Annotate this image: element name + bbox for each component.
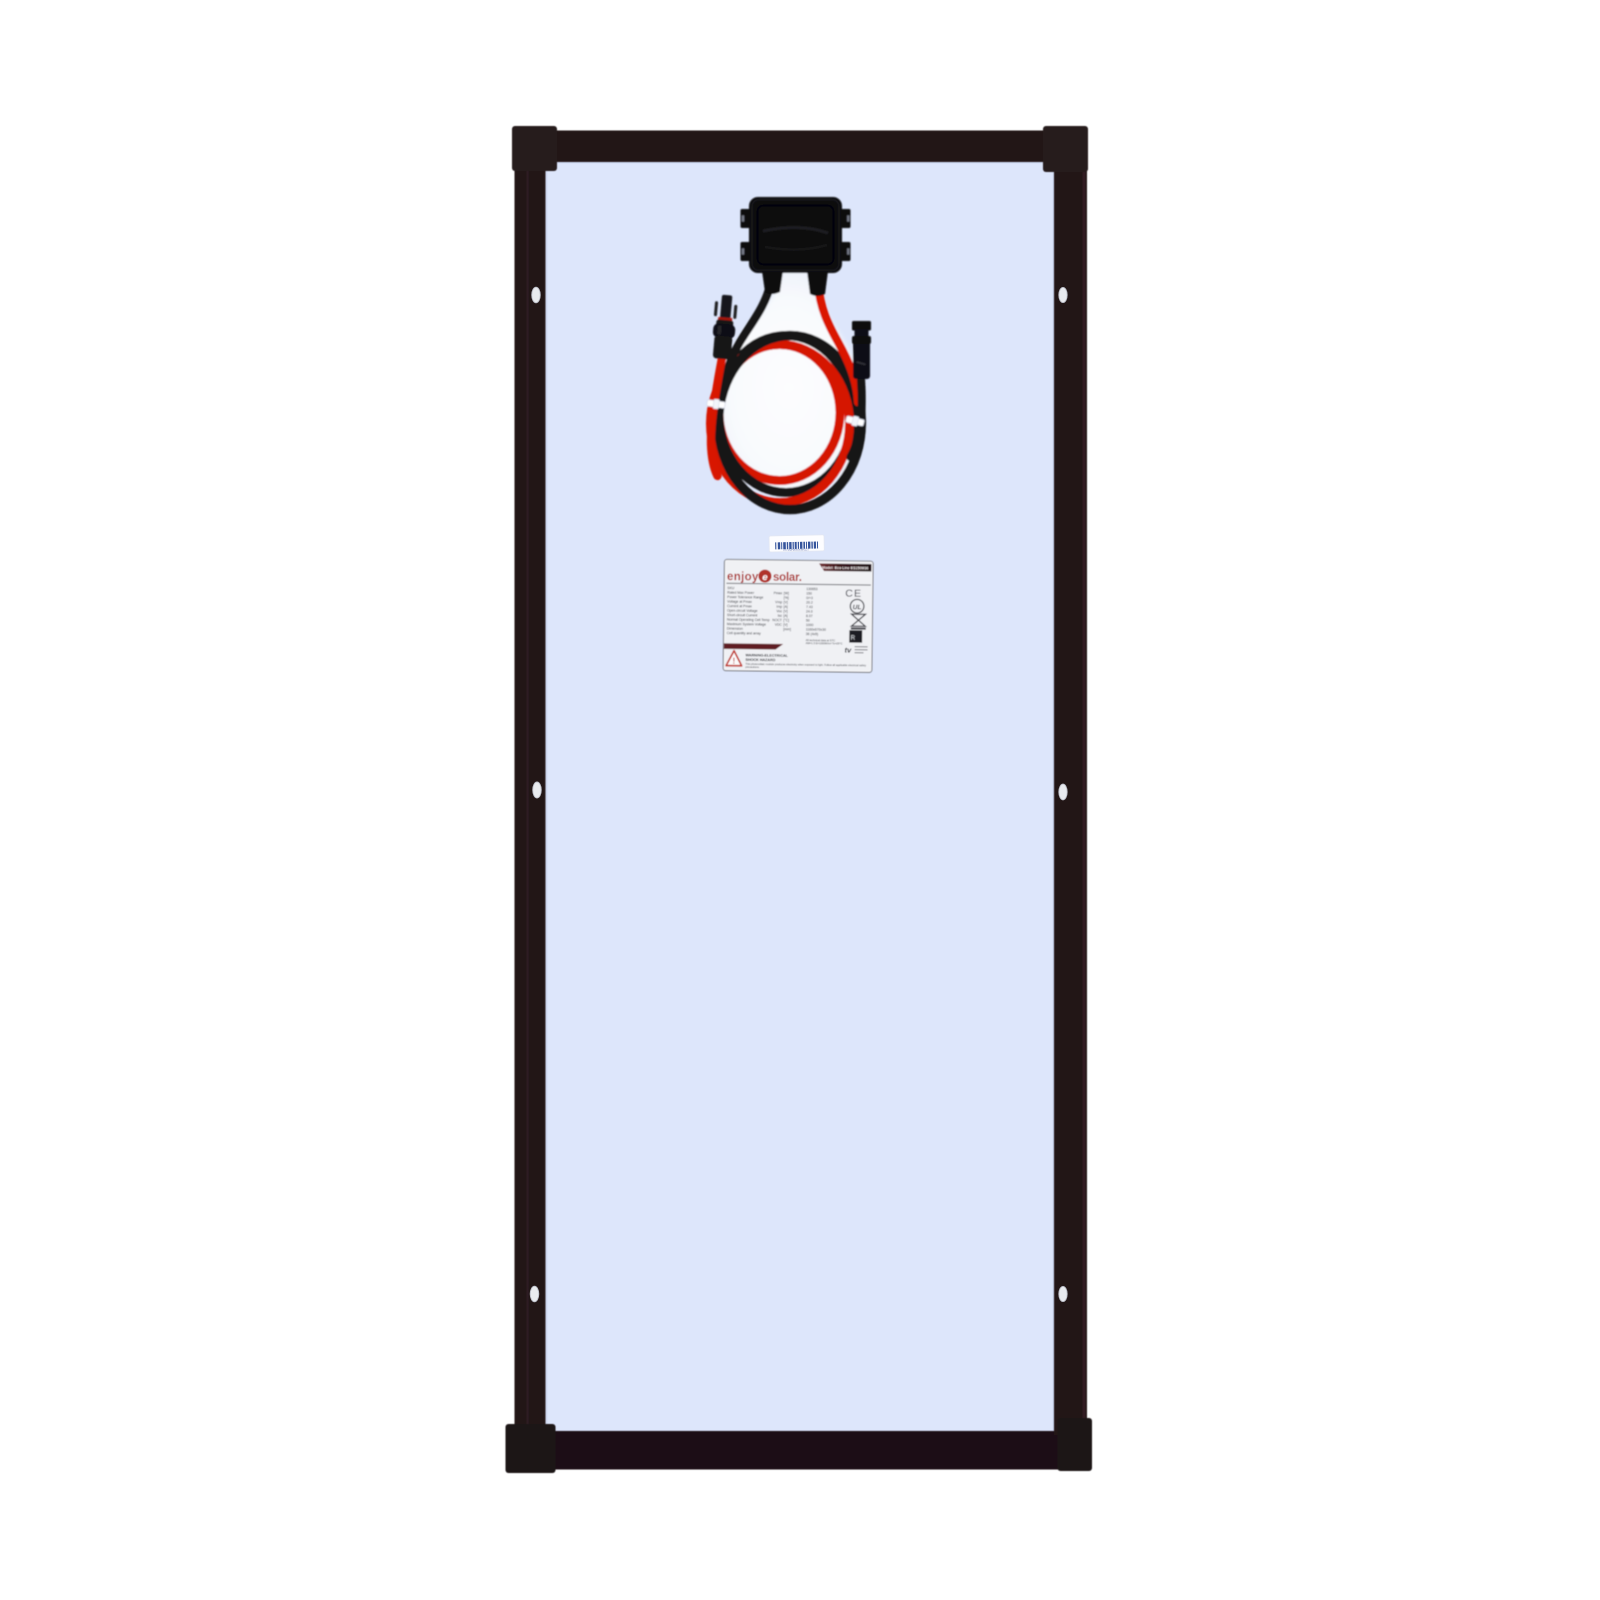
svg-text:[A]: [A] (783, 614, 787, 618)
svg-text:Cell quantity and array: Cell quantity and array (727, 631, 761, 635)
svg-text:[V]: [V] (784, 600, 788, 604)
svg-text:Imp: Imp (776, 605, 782, 609)
svg-text:[°C]: [°C] (783, 618, 789, 622)
svg-text:Model: Eco Line ES150M36: Model: Eco Line ES150M36 (822, 566, 868, 571)
svg-text:[V]: [V] (783, 623, 787, 627)
svg-text:20.2: 20.2 (806, 600, 813, 604)
svg-text:!: ! (733, 657, 736, 666)
svg-text:[W]: [W] (784, 591, 789, 595)
svg-text:8.07: 8.07 (806, 614, 813, 618)
svg-text:130653: 130653 (806, 587, 817, 591)
svg-text:[mm]: [mm] (783, 627, 791, 631)
svg-text:NOCT: NOCT (772, 618, 782, 622)
svg-text:36 (4x9): 36 (4x9) (806, 632, 819, 636)
svg-text:150: 150 (806, 591, 812, 595)
svg-text:solar.: solar. (773, 572, 802, 584)
svg-text:precautions.: precautions. (745, 665, 759, 669)
svg-text:[V]: [V] (784, 609, 788, 613)
svg-text:VDC: VDC (775, 623, 783, 627)
svg-text:Ph 9NPM0600M6227: Ph 9NPM0600M6227 (783, 547, 809, 552)
svg-text:CE: CE (845, 588, 862, 600)
svg-text:R: R (851, 635, 856, 641)
svg-text:Isc: Isc (778, 614, 783, 618)
svg-text:Voc: Voc (776, 609, 782, 613)
svg-text:[A]: [A] (784, 605, 788, 609)
svg-text:UL: UL (853, 604, 862, 611)
svg-text:50: 50 (806, 618, 810, 622)
svg-text:Vmp: Vmp (775, 600, 782, 604)
svg-text:0/+3: 0/+3 (806, 596, 813, 600)
svg-text:AM=1.5 E=1000W/m² Tc=25°C: AM=1.5 E=1000W/m² Tc=25°C (806, 641, 843, 645)
svg-text:SKU: SKU (727, 586, 735, 590)
svg-text:enjoy: enjoy (727, 571, 759, 583)
svg-text:1000: 1000 (806, 623, 814, 627)
svg-text:tv: tv (845, 646, 853, 655)
svg-text:SHOCK HAZARD: SHOCK HAZARD (745, 658, 775, 662)
svg-text:e: e (762, 572, 768, 583)
svg-text:7.43: 7.43 (806, 605, 813, 609)
svg-text:24.0: 24.0 (806, 609, 813, 613)
svg-text:Pmax: Pmax (774, 591, 783, 595)
svg-text:[%]: [%] (784, 596, 789, 600)
